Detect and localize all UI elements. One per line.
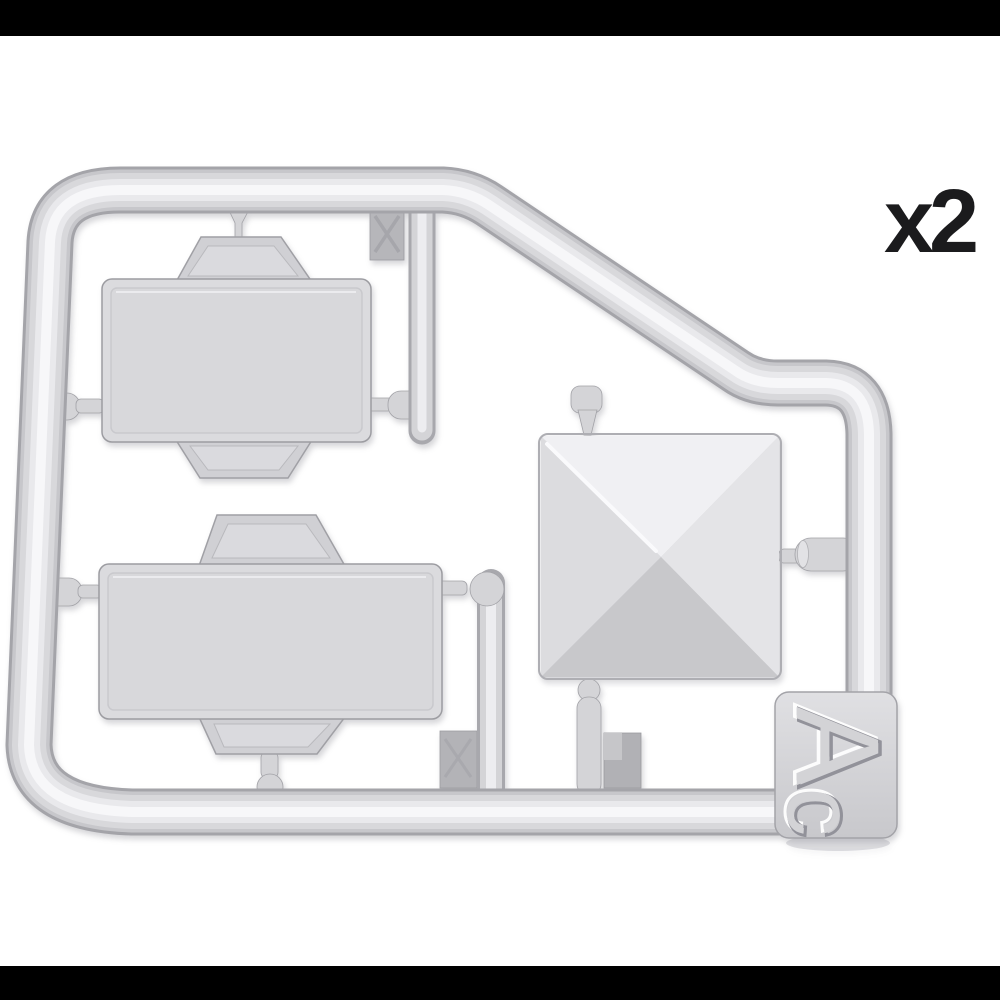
quantity-label: x2 <box>884 177 974 267</box>
tag-letter-A: A A A <box>769 705 905 788</box>
letterbox-top-bar <box>0 0 1000 36</box>
x-mark-tab-bottom <box>440 731 477 788</box>
part-folding-table-large <box>99 515 442 754</box>
sprue-tag: A A A c c c <box>765 692 905 851</box>
product-photo: A A A c c c x2 <box>0 0 1000 1000</box>
gate-taper-pyramid-top <box>578 410 597 435</box>
step-tab-bottom <box>604 733 641 788</box>
part-folding-table-small <box>102 237 371 478</box>
letterbox-bottom-bar <box>0 966 1000 1000</box>
sprue-illustration: A A A c c c <box>0 0 1000 1000</box>
part-pyramid-roof <box>539 434 781 679</box>
gate-capsule-endcap <box>798 541 809 568</box>
x-mark-square-top <box>370 209 404 260</box>
gate-cylinder-pyramid-bottom <box>577 697 601 795</box>
runner-knob <box>470 572 504 606</box>
tag-letter-c: c c c <box>765 786 876 838</box>
gate-collar-pyramid-top <box>571 386 602 413</box>
tag-letter-A-face: A <box>771 707 903 786</box>
gate-pin-left-upper <box>76 399 104 413</box>
tag-letter-c-face: c <box>767 788 874 836</box>
